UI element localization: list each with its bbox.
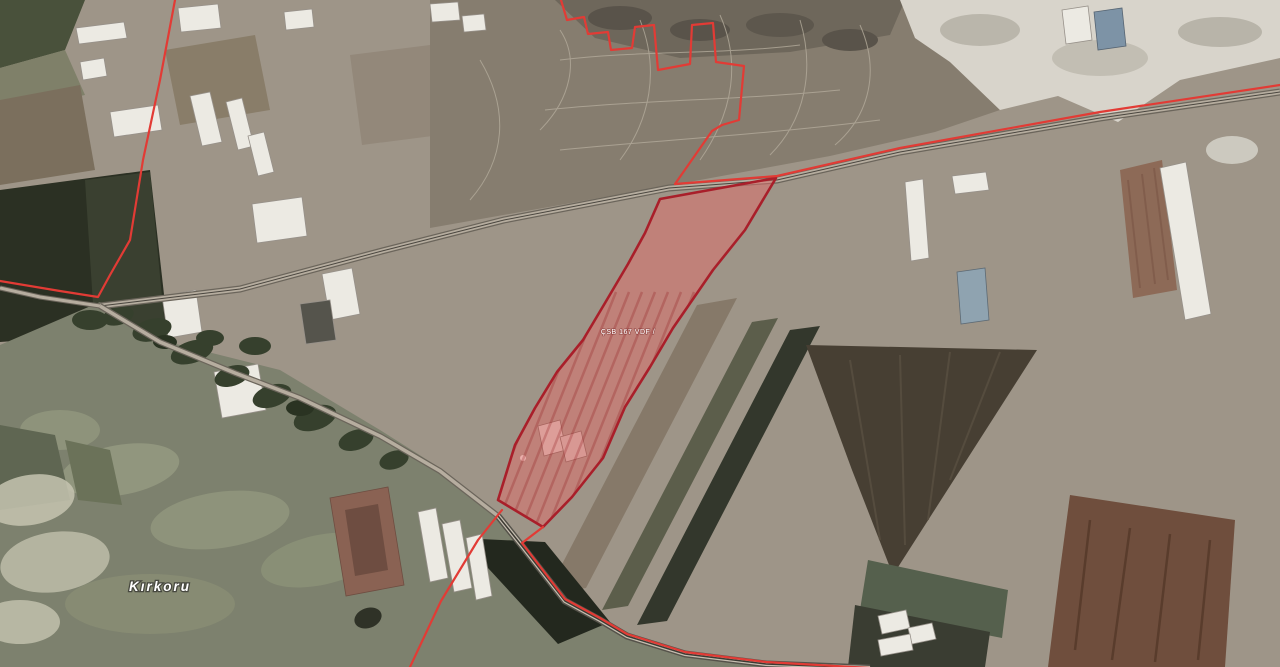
place-label-kirkoru: Kırkoru: [129, 579, 191, 594]
parcel-label: ÇSB 167 VDF /: [601, 329, 655, 336]
satellite-map-view[interactable]: ÇSB 167 VDF / Kırkoru: [0, 0, 1280, 667]
